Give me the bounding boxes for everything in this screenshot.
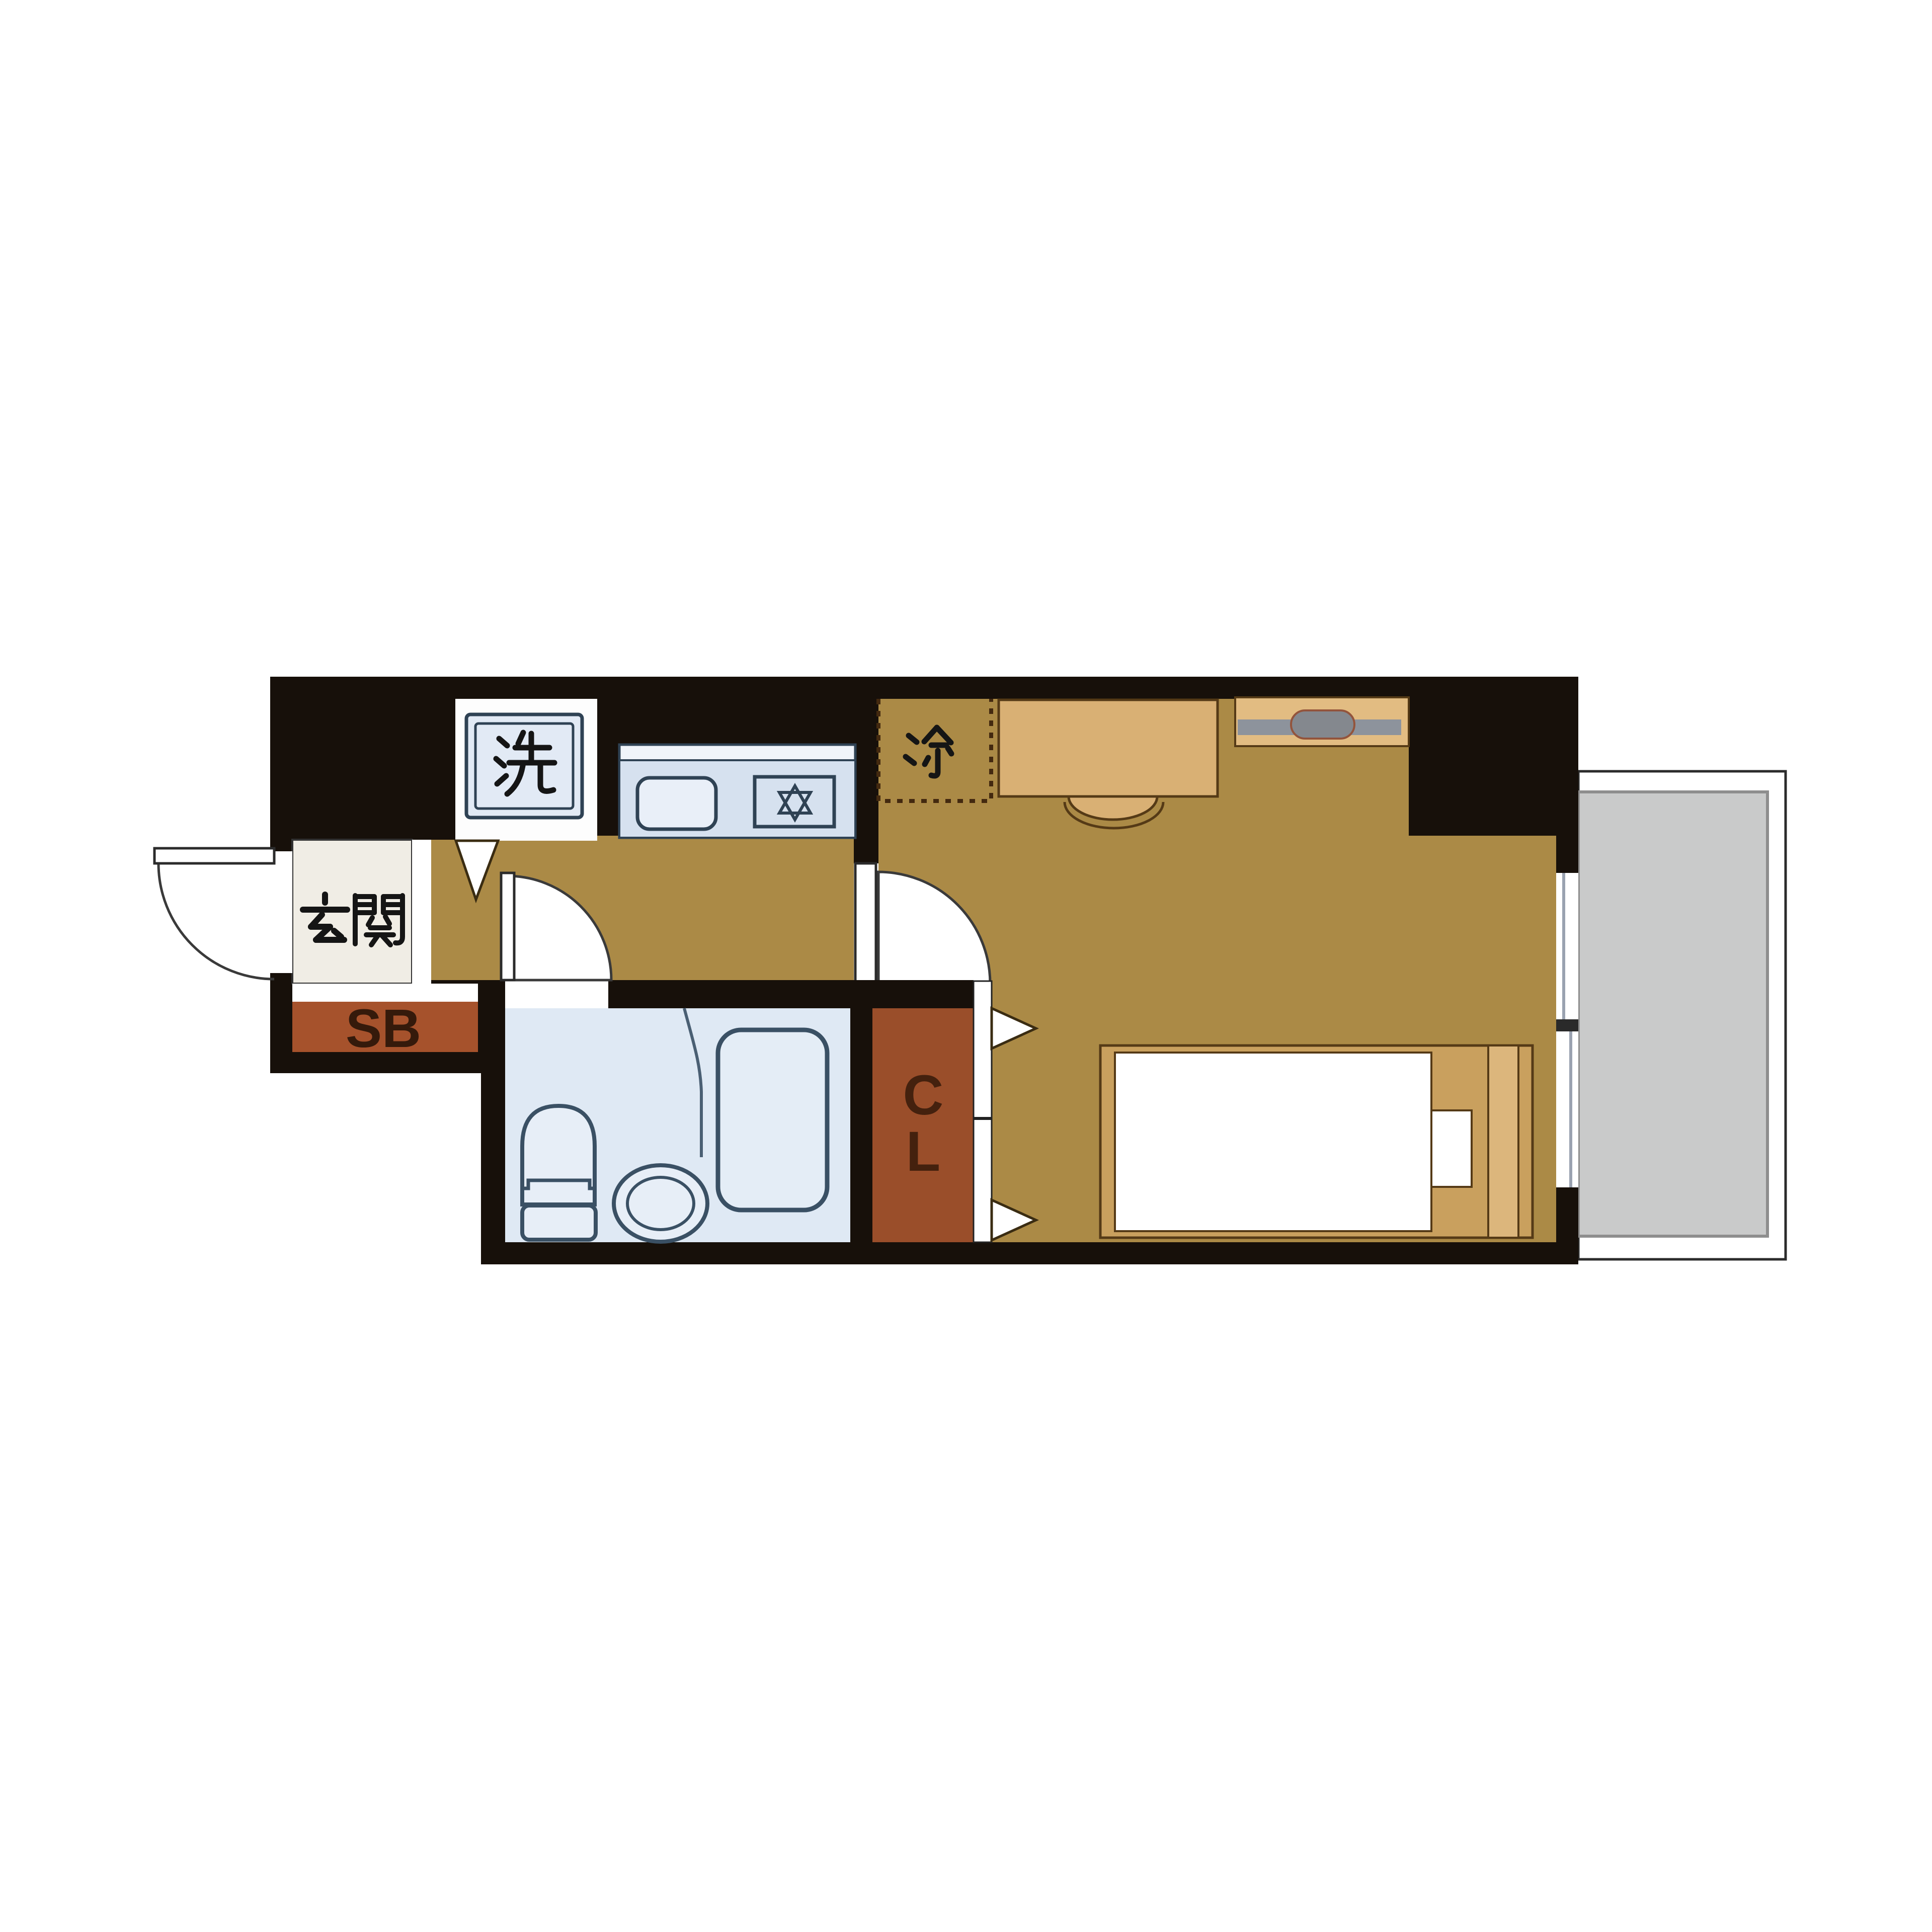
svg-text:SB: SB [346, 998, 421, 1059]
svg-text:C: C [903, 1064, 944, 1126]
svg-text:L: L [906, 1120, 940, 1183]
